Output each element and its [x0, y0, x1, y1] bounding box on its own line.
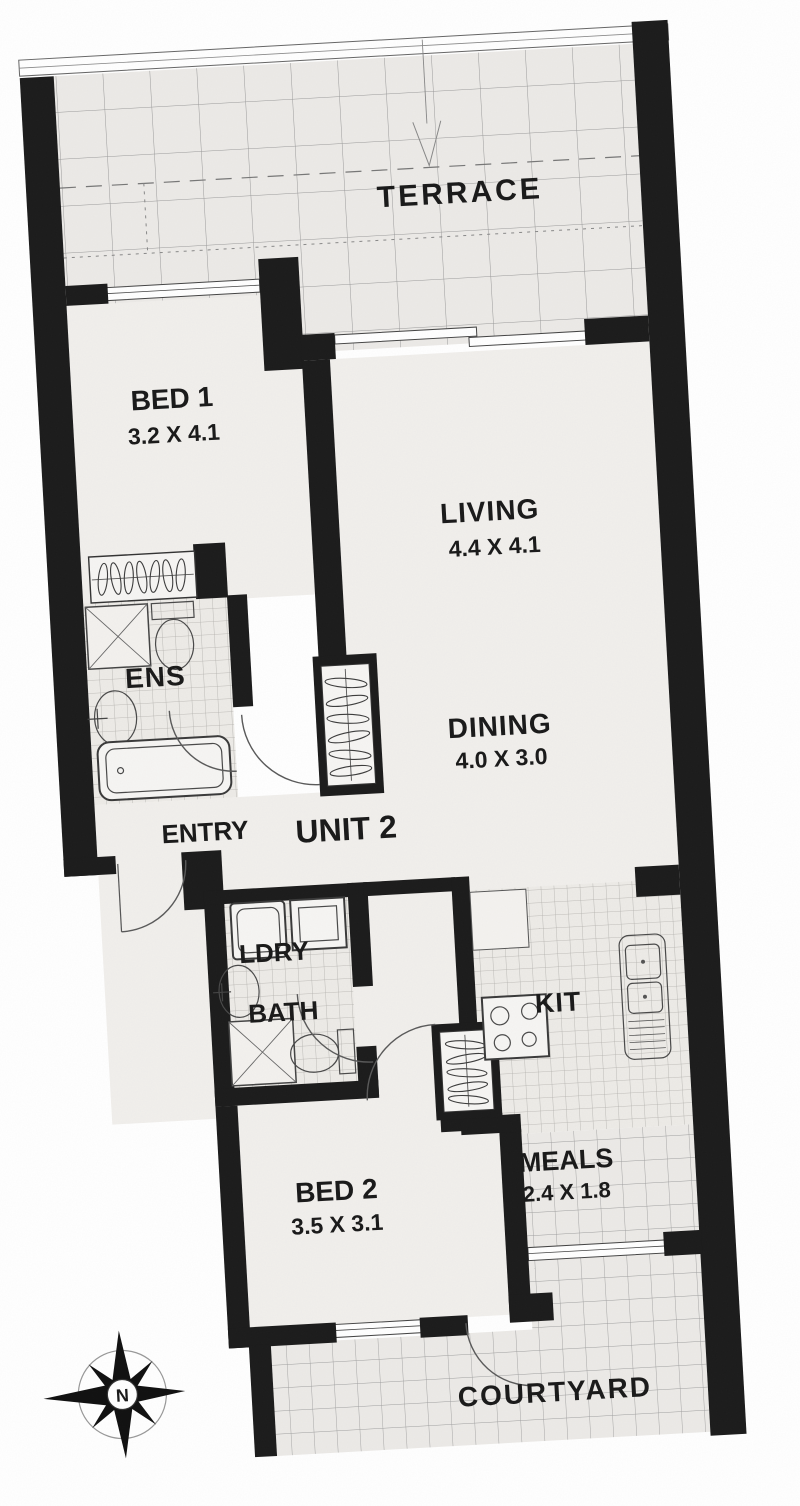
scan-noise-overlay: [0, 0, 800, 1506]
floorplan-scan: TERRACE BED 1 3.2 X 4.1 LIVING 4.4 X 4.1…: [0, 0, 800, 1506]
floorplan-svg: TERRACE BED 1 3.2 X 4.1 LIVING 4.4 X 4.1…: [0, 0, 800, 1506]
